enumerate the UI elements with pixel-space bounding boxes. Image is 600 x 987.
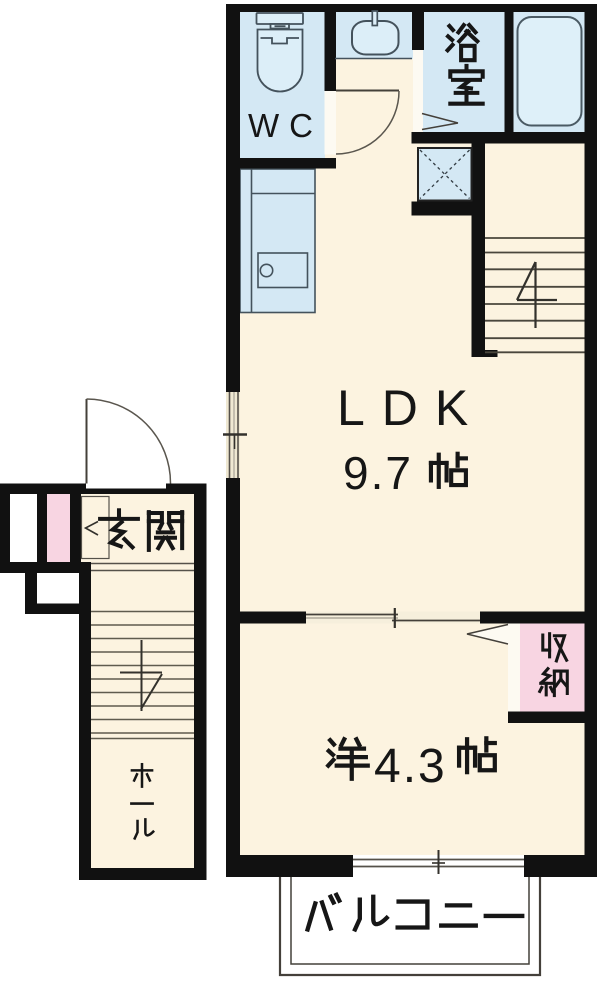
svg-text:WC: WC — [248, 107, 323, 144]
svg-text:4.3: 4.3 — [374, 740, 447, 793]
svg-text:LDK: LDK — [337, 380, 485, 436]
svg-text:9.7: 9.7 — [343, 447, 413, 499]
